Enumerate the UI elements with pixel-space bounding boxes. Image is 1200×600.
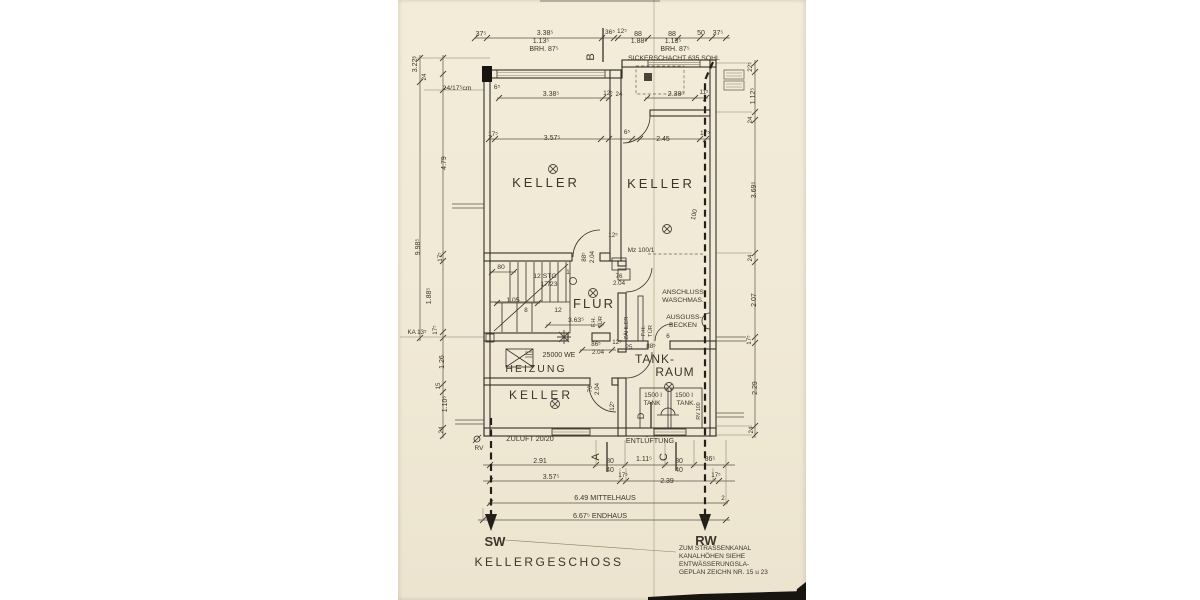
dim-label: 17⁵	[488, 131, 498, 138]
dim-label: 17⁵	[746, 335, 753, 345]
section-mark-d: D	[636, 412, 646, 419]
section-mark-a: A	[590, 453, 602, 461]
dim-label: 22⁵	[747, 62, 754, 72]
drain-symbol	[473, 435, 481, 443]
dim-label: 24	[438, 426, 445, 433]
chimney-shaft	[612, 258, 626, 270]
dim-label: 2	[721, 495, 725, 502]
dim-label: 15	[435, 382, 442, 389]
dim-label: 88⁵	[646, 343, 656, 350]
dim-label: 40	[675, 467, 683, 474]
section-mark-c: C	[658, 453, 670, 461]
dim-label: 9.98⁵	[415, 239, 422, 256]
rw-arrow-icon	[699, 514, 711, 531]
dim-label: TANK.	[677, 400, 696, 407]
dim-label: 17⁵	[700, 130, 710, 137]
label-entlueftung: ENTLÜFTUNG	[626, 436, 675, 445]
note-line-2: KANALHÖHEN SIEHE	[679, 552, 746, 560]
dim-label: KA 13⁵	[407, 329, 427, 336]
dim-label: 17⁵	[437, 252, 444, 262]
dim-label: 2.39	[660, 478, 674, 485]
dim-label: 3.57⁵	[543, 474, 560, 481]
dim-label: ZÄHLER	[623, 317, 630, 340]
floorplan-svg: 37⁵3.38⁵1.13⁵BRH. 87⁵36⁵12⁵881.88⁵881.13…	[0, 0, 1200, 600]
dim-label: 1	[566, 269, 570, 276]
dim-label: 1.13⁵	[533, 38, 550, 45]
labels-layer: 37⁵3.38⁵1.13⁵BRH. 87⁵36⁵12⁵881.88⁵881.13…	[407, 28, 768, 576]
drawing-title: KELLERGESCHOSS	[474, 555, 623, 569]
label-tank-2: 1500 l	[675, 392, 693, 399]
dim-label: BRH. 87⁵	[529, 46, 558, 53]
dim-label: 12⁵	[612, 339, 622, 346]
dim-label: 1.13⁵	[665, 38, 682, 45]
dim-label: 76	[616, 273, 623, 280]
sw-arrow-icon	[485, 514, 497, 531]
dim-label: 3.69⁵	[751, 182, 758, 199]
room-keller-nw: KELLER	[512, 175, 580, 190]
scanned-floorplan-page: 37⁵3.38⁵1.13⁵BRH. 87⁵36⁵12⁵881.88⁵881.13…	[0, 0, 1200, 600]
note-line-4: GEPLAN ZEICHN NR. 15 u 23	[679, 569, 768, 576]
dim-label: 25	[626, 344, 633, 351]
dim-label: BECKEN	[669, 322, 697, 329]
dim-label: 3.38⁵	[543, 91, 560, 98]
walls	[452, 60, 746, 436]
dim-label: 80	[675, 458, 683, 465]
steel-column	[482, 66, 492, 82]
dim-label: 36⁵	[605, 29, 615, 36]
dim-label: 24	[747, 254, 754, 261]
switch-symbol	[557, 330, 571, 344]
label-sickerschacht: SICKERSCHACHT 635 SOHL	[628, 55, 720, 62]
room-keller-sw: KELLER	[509, 388, 573, 402]
dim-label: 3.38⁵	[537, 30, 554, 37]
label-ausgussbecken: AUSGUSS-	[666, 314, 702, 321]
dim-label: TANK	[644, 400, 662, 407]
dim-label: 1.88⁵	[426, 288, 433, 305]
dim-label: 1.05	[506, 297, 519, 304]
label-heizung-capacity: 25000 WE	[543, 352, 576, 359]
dim-label: 12 STG	[533, 273, 556, 280]
dim-label: 2.04	[589, 250, 596, 263]
dim-label: 8	[524, 307, 528, 314]
note-line-3: ENTWÄSSERUNGSLA-	[679, 560, 749, 568]
dim-label: 3.63⁵	[568, 317, 584, 324]
dim-label: 12⁵	[609, 401, 616, 411]
dim-label: 24/17⁵cm	[443, 85, 472, 92]
dim-label: 1.12⁵	[750, 88, 757, 105]
dim-label: 2.04	[613, 280, 626, 287]
dim-label: 12⁵	[608, 232, 618, 239]
label-anschluss-waschmaschine: ANSCHLUSS	[662, 289, 704, 296]
dim-label: TÜR	[597, 316, 604, 328]
dim-label: 88	[668, 31, 676, 38]
dim-label: 80	[606, 458, 614, 465]
room-flur: FLUR	[573, 296, 615, 311]
dim-label: RV	[475, 445, 485, 452]
dim-label: Mz 100/1	[628, 247, 655, 254]
dim-label: 1.10⁵	[442, 396, 449, 413]
dim-label: 2.04	[594, 382, 601, 395]
dim-label: F.H.	[591, 316, 597, 327]
label-zuluft: ZULUFT 20/20	[506, 434, 553, 443]
sickerschacht-outline	[636, 66, 684, 94]
dim-label: 24	[748, 426, 755, 433]
dim-label: 2.38⁵	[668, 91, 685, 98]
dim-label: 2.07	[751, 293, 758, 307]
dim-label: TÜR	[647, 325, 654, 337]
dim-label: 17/23	[540, 281, 557, 288]
dim-label: 4.79	[441, 156, 448, 170]
note-line-1: ZUM STRASSENKANAL	[679, 545, 752, 552]
dim-label: 24	[747, 116, 754, 123]
dim-label: 17⁵	[711, 472, 721, 479]
dim-label: 3.22⁵	[412, 56, 419, 73]
label-tank-1: 1500 l	[644, 392, 662, 399]
dim-label: 12	[554, 307, 562, 314]
dim-label: 80	[497, 264, 505, 271]
dim-label: 88⁵	[581, 252, 588, 262]
dim-label: 76	[587, 385, 594, 392]
dim-label: 88	[634, 31, 642, 38]
dim-label: 17⁵	[432, 325, 439, 335]
room-keller-ne: KELLER	[627, 176, 695, 191]
label-endhaus: 6.67⁵ ENDHAUS	[573, 511, 627, 520]
room-heizung: HEIZUNG	[505, 363, 566, 375]
dim-label: 37⁵	[476, 31, 487, 38]
sickerschacht-marker	[644, 73, 652, 81]
dim-label: 100	[690, 208, 699, 220]
dim-label: RV 100	[696, 402, 702, 419]
dim-label: 2.04	[592, 349, 605, 356]
dim-label: 2.91	[533, 458, 547, 465]
room-tankraum-line1: TANK-	[635, 352, 675, 366]
dim-label: 11⁵	[700, 89, 709, 96]
room-tankraum-line2: RAUM	[655, 365, 694, 379]
dim-label: 40	[606, 467, 614, 474]
label-mittelhaus: 6.49 MITTELHAUS	[574, 493, 636, 502]
dim-label: 50	[697, 30, 705, 37]
dim-label: BRH. 87⁵	[660, 46, 689, 53]
dim-label: 12⁵	[603, 90, 613, 97]
dim-label: 1.88⁵	[631, 38, 648, 45]
dim-label: 6	[666, 333, 670, 340]
dim-label: 3.57⁵	[544, 135, 561, 142]
dim-label: 2.45	[656, 136, 670, 143]
dim-label: 17⁵	[618, 472, 628, 479]
dim-label: 1.26	[439, 355, 446, 369]
dim-label: 86⁵	[591, 341, 601, 348]
dim-label: F.H.	[641, 325, 647, 336]
dim-label: 6⁵	[494, 84, 501, 91]
dim-label: 24	[421, 73, 428, 80]
dim-label: 86⁵	[705, 456, 716, 463]
dim-label: 2.29	[752, 381, 759, 395]
dim-label: 12⁵	[617, 28, 627, 35]
dim-label: 6⁵	[624, 129, 631, 136]
dim-label: 24	[616, 91, 623, 98]
section-mark-b: B	[585, 53, 597, 60]
dim-label: 1.11⁵	[636, 456, 652, 463]
dim-label: 37⁵	[713, 30, 724, 37]
dim-label: WASCHMAS.	[662, 297, 704, 304]
pipe-label-sw: SW	[485, 534, 507, 549]
